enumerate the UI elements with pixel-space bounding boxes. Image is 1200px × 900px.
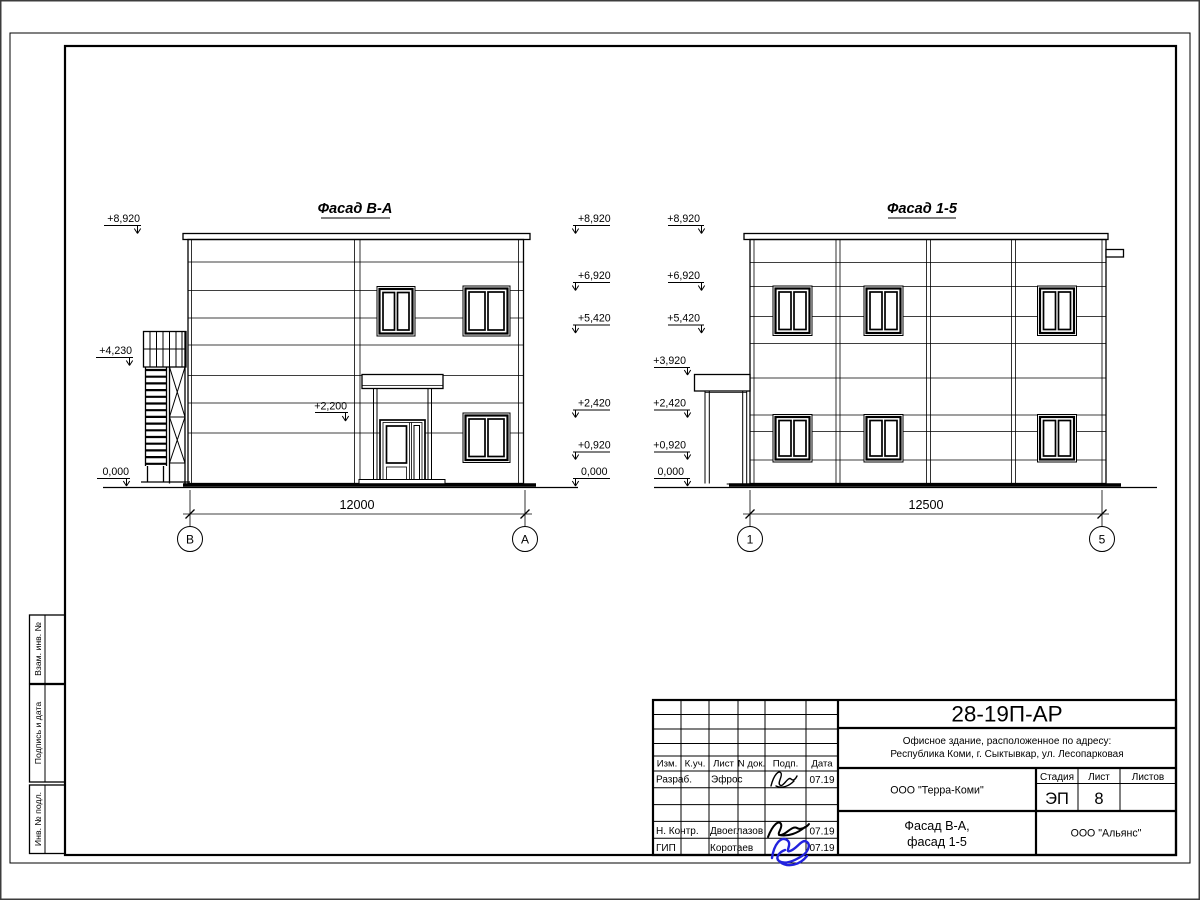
date-value: 07.19 (809, 843, 834, 854)
window (463, 286, 510, 336)
blueprint-canvas: Фасад В-А (0, 0, 1200, 900)
axis-label: В (186, 533, 194, 547)
elevation-mark: +5,420 (578, 313, 611, 325)
document-number: 28-19П-АР (951, 702, 1062, 727)
sheet-label: Лист (1088, 772, 1110, 783)
ncontrol-signature (768, 823, 809, 837)
client-name: ООО "Терра-Коми" (890, 785, 984, 797)
elevation-marks-ba-left: +8,920 +4,230 0,000 (96, 213, 141, 486)
sheet-number: 8 (1094, 790, 1103, 808)
gip-signature (772, 839, 809, 865)
contractor-name: ООО "Альянс" (1071, 828, 1142, 840)
window (377, 287, 415, 337)
elevation-mark: +0,920 (653, 440, 686, 452)
drawing-sheet: Фасад В-А (0, 0, 1200, 900)
stage-label: Стадия (1040, 772, 1074, 783)
elevation-mark: +2,420 (653, 398, 686, 410)
elevation-mark: 0,000 (581, 466, 608, 478)
col-kuch: К.уч. (685, 759, 706, 770)
axis-label: 5 (1099, 533, 1106, 547)
signature-row-developer: Разраб. Эфрос 07.19 (656, 772, 835, 787)
axis-label: А (521, 533, 529, 547)
elevation-marks-15-left: +8,920 +6,920 +5,420 +3,920 +2,420 +0,92… (653, 213, 704, 486)
facade-15-building (654, 234, 1157, 488)
elevation-mark: +8,920 (107, 213, 140, 225)
role-label: Н. Контр. (656, 826, 699, 837)
revision-header-row: Изм. К.уч. Лист N док. Подп. Дата (657, 759, 834, 770)
roof-pipe (1106, 250, 1124, 258)
dimension-value: 12500 (908, 498, 943, 512)
sheets-label: Листов (1132, 772, 1165, 783)
elevation-mark: +4,230 (99, 345, 132, 357)
developer-signature (771, 772, 797, 787)
facade-15-dimension: 12500 1 5 (738, 490, 1115, 552)
window (1038, 286, 1077, 336)
entrance-door (380, 420, 425, 484)
side-canopy (695, 375, 751, 485)
elevation-marks-ba-right: +8,920 +6,920 +5,420 +2,420 +0,920 0,000 (572, 213, 611, 486)
side-stamps: Взам. инв. № Подпись и дата Инв. № подл. (30, 615, 66, 854)
facade-ba-title: Фасад В-А (318, 201, 393, 217)
date-value: 07.19 (809, 827, 834, 838)
person-name: Коротаев (710, 843, 753, 854)
stamp-label-podpis: Подпись и дата (33, 702, 43, 765)
title-block: Изм. К.уч. Лист N док. Подп. Дата Разраб… (653, 700, 1176, 865)
window (463, 413, 510, 463)
col-izm: Изм. (657, 759, 678, 770)
fire-escape-stair (141, 332, 190, 484)
stage-value: ЭП (1045, 790, 1069, 808)
elevation-mark: +0,920 (578, 440, 611, 452)
elevation-mark: +8,920 (578, 213, 611, 225)
elevation-mark-inner: +2,200 (314, 401, 348, 422)
stamp-label-inv: Инв. № подл. (33, 792, 43, 846)
sheet-inner-frame (65, 46, 1176, 855)
dimension-value: 12000 (339, 498, 374, 512)
signature-row-gip: ГИП Коротаев 07.19 (656, 839, 835, 865)
project-address-line1: Офисное здание, расположенное по адресу: (903, 735, 1112, 747)
facade-ba-drawing: Фасад В-А (96, 201, 611, 552)
person-name: Двоеглазов (710, 826, 763, 837)
elevation-mark: 0,000 (657, 466, 684, 478)
facade-15-title: Фасад 1-5 (887, 201, 958, 217)
window (864, 415, 903, 463)
sheet-title-line2: фасад 1-5 (907, 835, 967, 849)
window (773, 286, 812, 336)
elevation-mark: +2,200 (314, 401, 347, 413)
elevation-mark: +8,920 (667, 213, 700, 225)
col-list: Лист (713, 759, 734, 770)
facade-15-drawing: Фасад 1-5 (653, 201, 1157, 552)
role-label: Разраб. (656, 774, 692, 786)
elevation-mark: +3,920 (653, 355, 686, 367)
stamp-label-vzam: Взам. инв. № (33, 622, 43, 676)
facade-ba-building (103, 234, 578, 488)
elevation-mark: +6,920 (578, 270, 611, 282)
col-data: Дата (811, 759, 833, 770)
elevation-mark: 0,000 (102, 466, 129, 478)
window (864, 286, 903, 336)
sheet-title-line1: Фасад В-А, (904, 819, 969, 833)
person-name: Эфрос (711, 774, 743, 786)
window (773, 415, 812, 463)
facade-ba-dimension: 12000 В А (178, 490, 538, 552)
elevation-mark: +2,420 (578, 398, 611, 410)
axis-label: 1 (747, 533, 754, 547)
col-ndok: N док. (738, 759, 765, 770)
elevation-mark: +5,420 (667, 313, 700, 325)
window (1038, 415, 1077, 463)
role-label: ГИП (656, 843, 676, 854)
date-value: 07.19 (809, 775, 834, 786)
signature-row-ncontrol: Н. Контр. Двоеглазов 07.19 (656, 823, 835, 838)
project-address-line2: Республика Коми, г. Сыктывкар, ул. Лесоп… (890, 748, 1123, 760)
col-podp: Подп. (773, 759, 798, 770)
elevation-mark: +6,920 (667, 270, 700, 282)
